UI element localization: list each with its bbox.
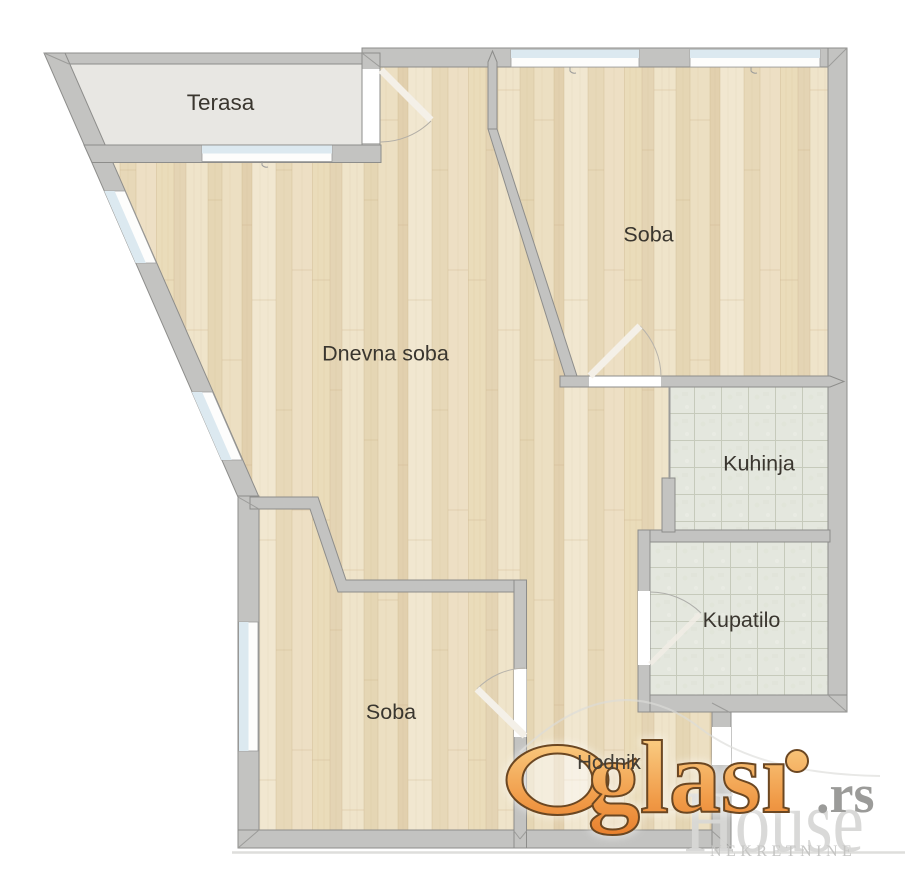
svg-text:Terasa: Terasa bbox=[187, 90, 255, 115]
svg-text:NEKRETNINE: NEKRETNINE bbox=[710, 843, 856, 860]
svg-text:.rs: .rs bbox=[816, 764, 874, 824]
svg-text:Soba: Soba bbox=[366, 700, 416, 724]
svg-text:glası: glası bbox=[588, 720, 790, 835]
svg-text:Kuhinja: Kuhinja bbox=[723, 452, 795, 476]
svg-text:Dnevna soba: Dnevna soba bbox=[322, 342, 449, 366]
svg-text:Soba: Soba bbox=[623, 223, 673, 247]
svg-text:Kupatilo: Kupatilo bbox=[703, 608, 781, 632]
svg-text:Hodnik: Hodnik bbox=[577, 751, 642, 774]
